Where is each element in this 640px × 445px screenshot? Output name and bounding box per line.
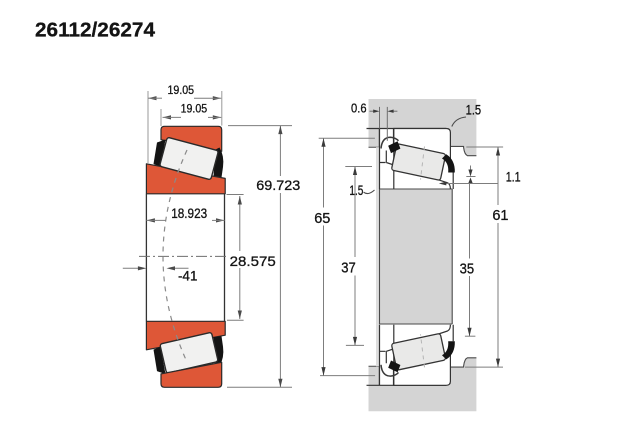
svg-text:19.05: 19.05 — [181, 102, 208, 116]
svg-text:35: 35 — [460, 262, 475, 278]
svg-text:1.5: 1.5 — [466, 103, 482, 118]
svg-text:65: 65 — [314, 211, 330, 227]
svg-text:69.723: 69.723 — [256, 177, 300, 193]
svg-text:28.575: 28.575 — [230, 253, 276, 269]
svg-text:37: 37 — [341, 261, 356, 277]
svg-text:1.1: 1.1 — [506, 170, 521, 185]
svg-text:0.6: 0.6 — [351, 101, 367, 116]
svg-text:-41: -41 — [178, 269, 198, 284]
svg-text:61: 61 — [492, 208, 508, 224]
svg-text:1.5: 1.5 — [349, 183, 363, 198]
svg-text:18.923: 18.923 — [171, 206, 207, 221]
svg-text:26112/26274: 26112/26274 — [35, 20, 156, 42]
svg-text:19.05: 19.05 — [168, 83, 195, 97]
